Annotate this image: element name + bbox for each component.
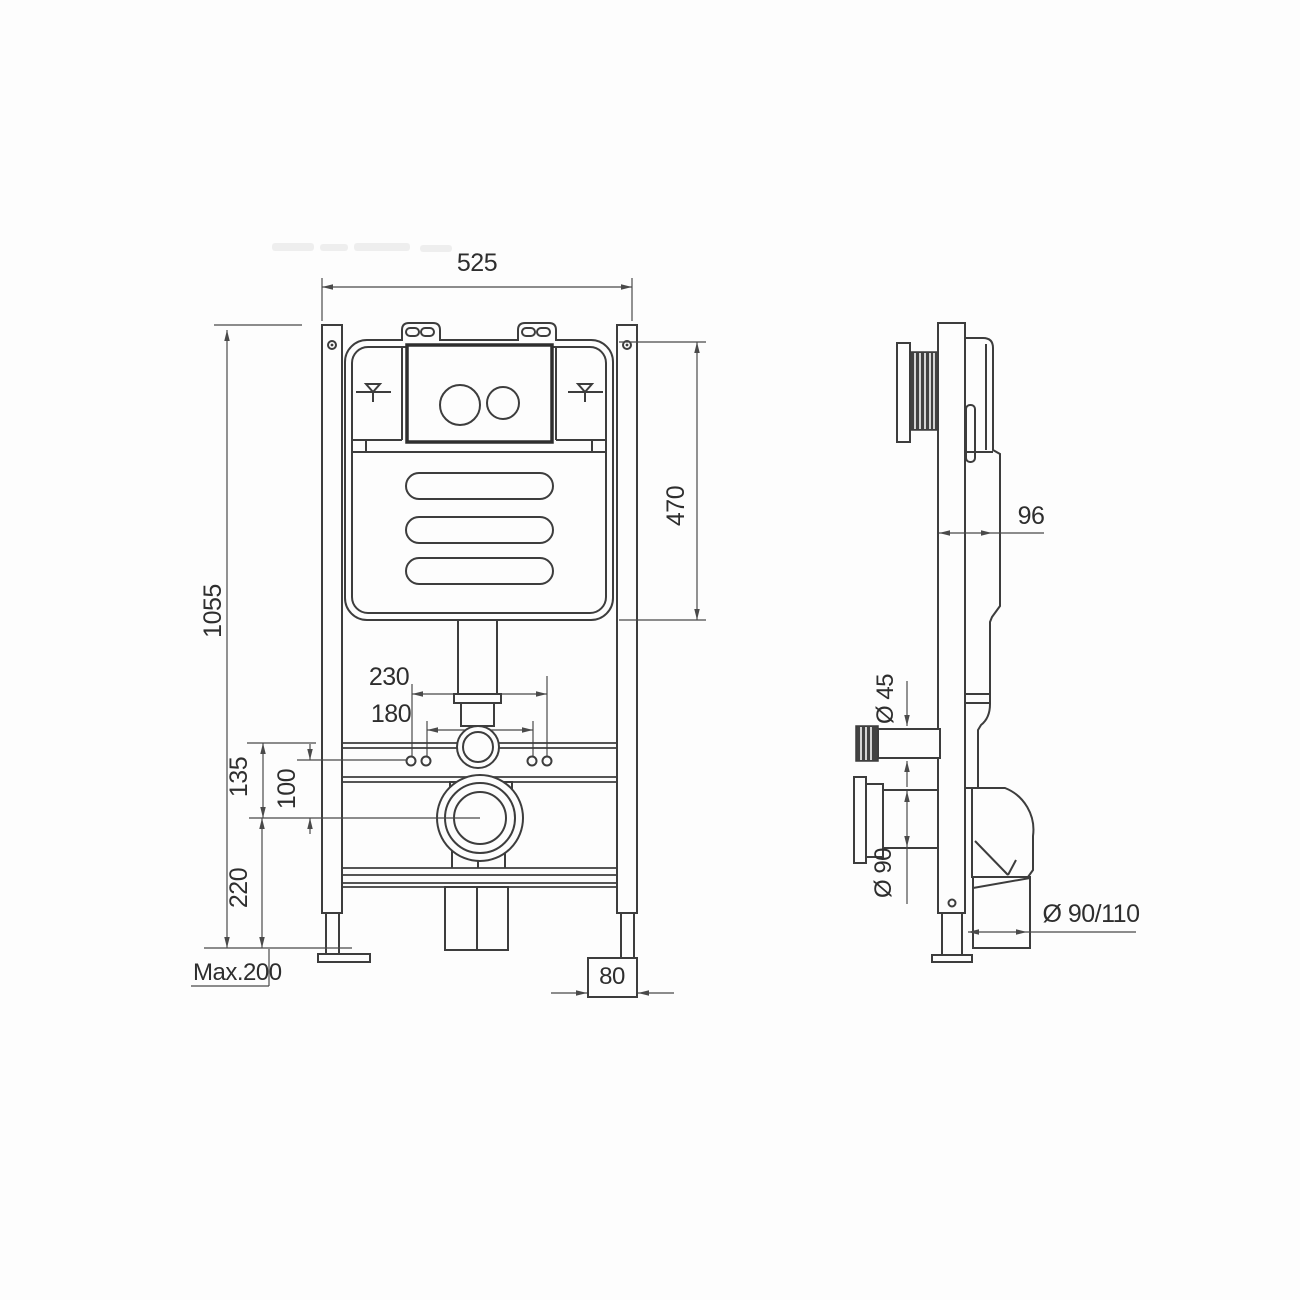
access-sleeve — [910, 352, 938, 430]
dim-outlet-height-label: 220 — [225, 868, 253, 908]
dim-fixings-to-outlet-label: 100 — [273, 769, 301, 809]
left-rail — [322, 325, 342, 913]
cistern-frame-technical-drawing: 525 1055 470 230 180 135 100 220 Max.200… — [0, 0, 1300, 1300]
wall-flange — [897, 343, 910, 442]
waste-outlet — [437, 775, 523, 868]
dim-fixing-inner-label: 180 — [371, 700, 411, 728]
front-view — [318, 323, 637, 997]
dim-frame-width-label: 525 — [457, 249, 497, 277]
cistern-side-profile — [965, 338, 1000, 788]
dim-frame-height-label: 1055 — [199, 584, 227, 638]
flush-pipe — [454, 620, 501, 768]
dim-inlet-diameter-label: Ø 45 — [872, 674, 899, 724]
dim-frame-depth-label: 96 — [1018, 502, 1045, 530]
watermark-smudge — [272, 243, 452, 252]
waste-elbow — [972, 788, 1033, 948]
dim-outlet-diameter-label: Ø 90 — [870, 848, 897, 898]
dim-fixing-outer-label: 230 — [369, 663, 409, 691]
inlet-pipe — [856, 726, 940, 761]
top-brackets — [402, 323, 556, 341]
side-rail — [938, 323, 965, 913]
dim-rail-to-outlet-label: 135 — [225, 757, 253, 797]
technical-drawing-page: 525 1055 470 230 180 135 100 220 Max.200… — [0, 0, 1300, 1300]
dim-foot-width-label: 80 — [599, 963, 625, 990]
dim-foot-adjust-label: Max.200 — [193, 959, 282, 986]
dim-waste-diameter-label: Ø 90/110 — [1042, 900, 1139, 928]
flush-plate — [407, 345, 552, 442]
dim-cistern-height-label: 470 — [662, 486, 690, 526]
right-rail — [617, 325, 637, 913]
